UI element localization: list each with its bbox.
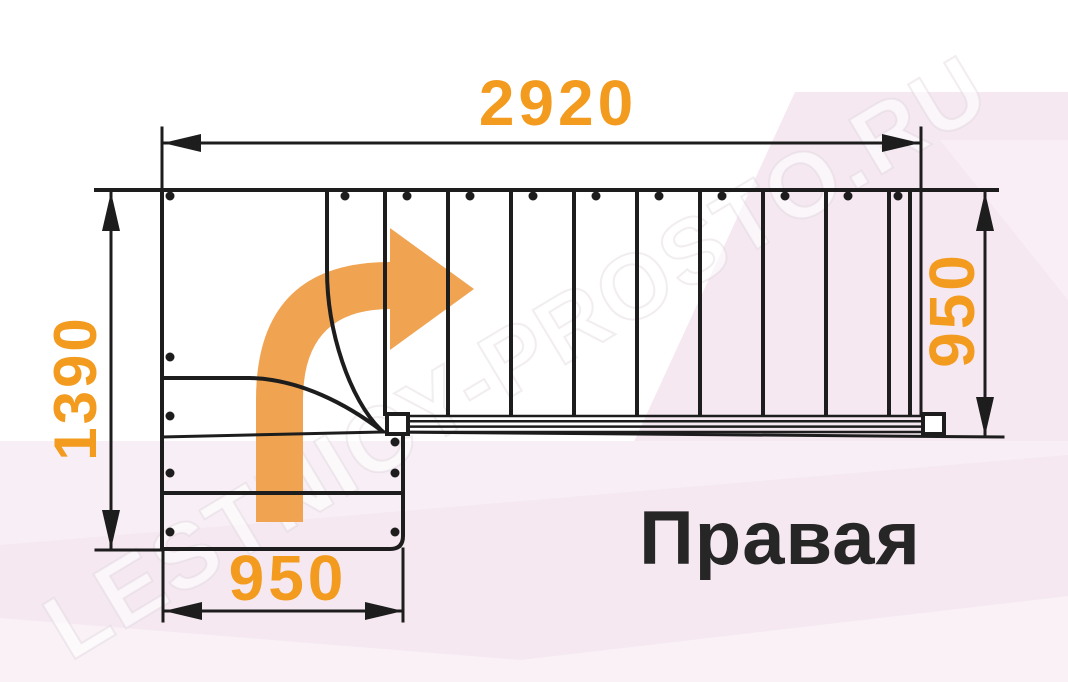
arrow-up-icon [102,192,120,231]
newel-post-right [923,414,944,434]
dimension-right-label: 950 [920,252,984,368]
dimension-bottom-label: 950 [229,546,348,610]
orientation-label: Правая [639,495,921,582]
arrow-left-icon [163,134,201,152]
newel-post-left [387,414,408,434]
staircase-plan-diagram: LESTNICY-PROSTO.RU [0,0,1068,682]
dimension-top-label: 2920 [479,71,637,135]
dimension-left-label: 1390 [46,315,106,460]
